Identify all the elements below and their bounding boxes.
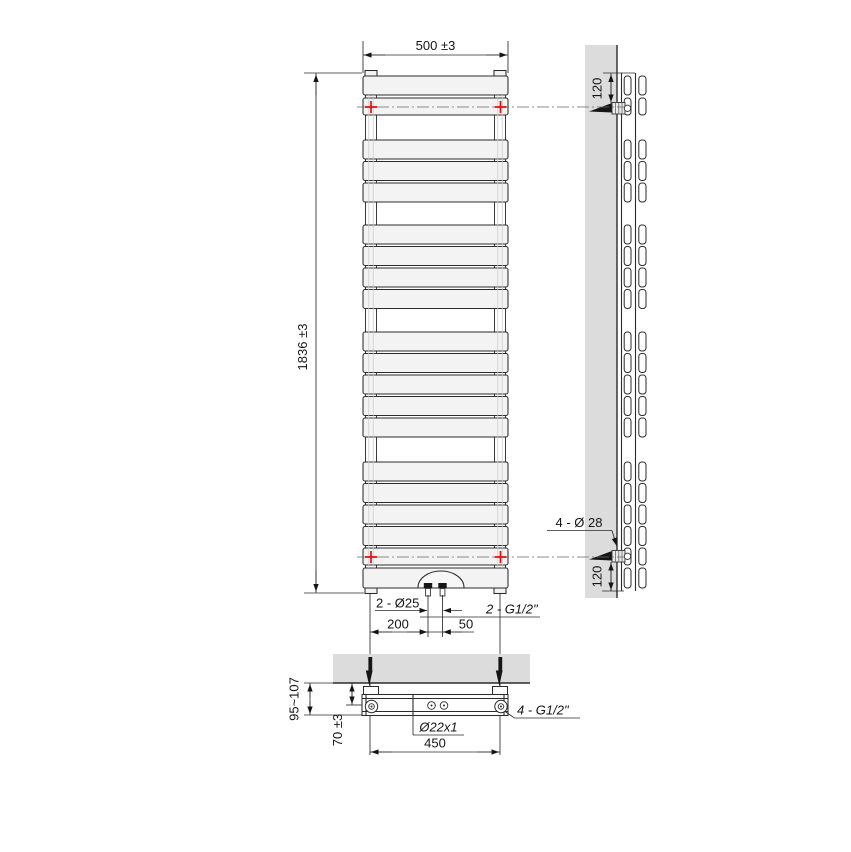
plan-view bbox=[333, 654, 530, 716]
technical-drawing-page: 500 ±3 1836 ±3 2 - Ø25 2 - G1/2" 200 50 bbox=[0, 0, 851, 852]
dim-width: 500 ±3 bbox=[363, 38, 508, 73]
side-slat-column-front bbox=[624, 76, 631, 588]
plan-thread-callout: 4 - G1/2" bbox=[505, 703, 580, 719]
connection-pipe-left bbox=[424, 583, 432, 596]
foot-tab bbox=[494, 588, 506, 594]
foot-tab bbox=[365, 588, 377, 594]
axis-clearance-label: 70 ±3 bbox=[330, 714, 345, 746]
dim-bracket-spacing: 450 bbox=[370, 736, 500, 753]
height-dim-label: 1836 ±3 bbox=[295, 324, 310, 371]
dim-height: 1836 ±3 bbox=[295, 73, 364, 593]
bottom-bracket-offset-label: 120 bbox=[590, 566, 605, 588]
connection-offset-label: 200 bbox=[387, 617, 409, 632]
side-slat-column-back bbox=[639, 76, 646, 588]
radiator-dimension-drawing: 500 ±3 1836 ±3 2 - Ø25 2 - G1/2" 200 50 bbox=[0, 0, 851, 852]
riser-spec-label: 4 - Ø 28 bbox=[556, 515, 603, 530]
width-dim-label: 500 ±3 bbox=[416, 38, 456, 53]
radiator-plan-body bbox=[362, 695, 508, 716]
connection-spacing-label: 50 bbox=[459, 617, 473, 632]
top-bracket-offset-label: 120 bbox=[590, 78, 605, 100]
bracket-plate-right bbox=[493, 687, 508, 695]
bracket-spacing-label: 450 bbox=[424, 736, 446, 751]
plan-thread-label: 4 - G1/2" bbox=[517, 703, 570, 718]
connection-diameter-label: 2 - Ø25 bbox=[376, 596, 419, 611]
bracket-plate-left bbox=[364, 687, 379, 695]
panel-stack bbox=[363, 76, 508, 588]
connection-thread-label: 2 - G1/2" bbox=[485, 602, 539, 617]
tube-spec-label: Ø22x1 bbox=[418, 720, 457, 735]
connection-pipe-right bbox=[438, 583, 446, 596]
wall-clearance-label: 95~107 bbox=[287, 677, 302, 721]
